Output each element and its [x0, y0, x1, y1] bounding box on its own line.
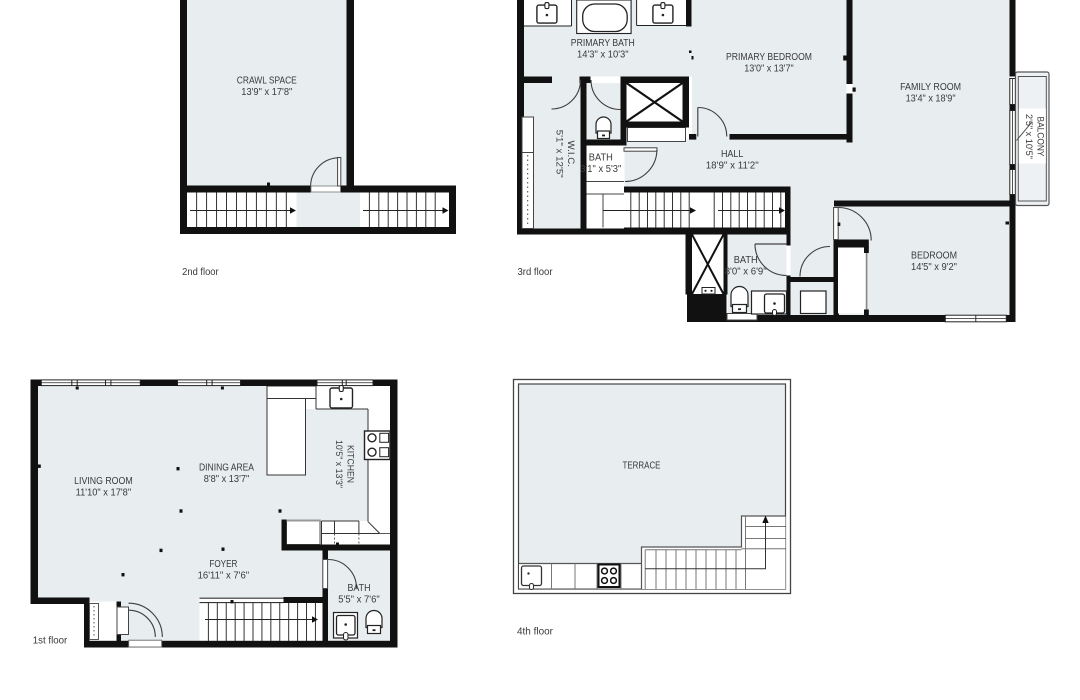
svg-text:13'9" x 17'8": 13'9" x 17'8": [241, 87, 292, 98]
svg-text:CRAWL SPACE: CRAWL SPACE: [237, 76, 297, 87]
svg-text:13'4" x 18'9": 13'4" x 18'9": [906, 94, 956, 105]
svg-text:HALL: HALL: [721, 149, 744, 160]
svg-text:3rd floor: 3rd floor: [518, 266, 553, 278]
svg-text:BATH: BATH: [589, 153, 613, 164]
svg-text:FAMILY ROOM: FAMILY ROOM: [900, 82, 961, 93]
svg-text:BALCONY: BALCONY: [1034, 117, 1045, 158]
svg-text:DINING AREA: DINING AREA: [199, 463, 254, 474]
svg-text:13'0" x 13'7": 13'0" x 13'7": [744, 64, 794, 75]
svg-text:8'8" x 13'7": 8'8" x 13'7": [204, 474, 250, 485]
svg-text:2'5" x 10'5": 2'5" x 10'5": [1023, 114, 1034, 159]
svg-text:3'1" x 5'3": 3'1" x 5'3": [580, 164, 621, 175]
svg-text:8'0" x 6'9": 8'0" x 6'9": [725, 267, 767, 278]
svg-text:KITCHEN: KITCHEN: [345, 445, 356, 483]
svg-text:10'5" x 13'3": 10'5" x 13'3": [333, 440, 344, 488]
svg-text:18'9" x 11'2": 18'9" x 11'2": [706, 161, 759, 172]
svg-text:BATH: BATH: [348, 583, 371, 594]
svg-text:FOYER: FOYER: [209, 559, 237, 570]
svg-text:5'5" x 7'6": 5'5" x 7'6": [338, 595, 380, 606]
svg-text:BEDROOM: BEDROOM: [911, 251, 957, 262]
svg-text:TERRACE: TERRACE: [623, 461, 661, 472]
svg-text:PRIMARY BATH: PRIMARY BATH: [571, 38, 635, 49]
svg-text:BATH: BATH: [734, 255, 758, 266]
svg-text:4th floor: 4th floor: [517, 626, 553, 638]
svg-text:1st floor: 1st floor: [33, 634, 68, 646]
svg-text:LIVING ROOM: LIVING ROOM: [74, 476, 133, 487]
svg-text:14'5" x 9'2": 14'5" x 9'2": [911, 262, 957, 273]
svg-text:2nd floor: 2nd floor: [182, 266, 219, 278]
svg-text:5'1" x 12'5": 5'1" x 12'5": [554, 130, 565, 178]
svg-text:11'10" x 17'8": 11'10" x 17'8": [76, 487, 132, 498]
svg-text:14'3" x 10'3": 14'3" x 10'3": [577, 50, 629, 61]
svg-text:PRIMARY BEDROOM: PRIMARY BEDROOM: [726, 52, 812, 63]
svg-text:W.I.C.: W.I.C.: [565, 140, 576, 167]
svg-text:16'11" x 7'6": 16'11" x 7'6": [198, 571, 250, 582]
